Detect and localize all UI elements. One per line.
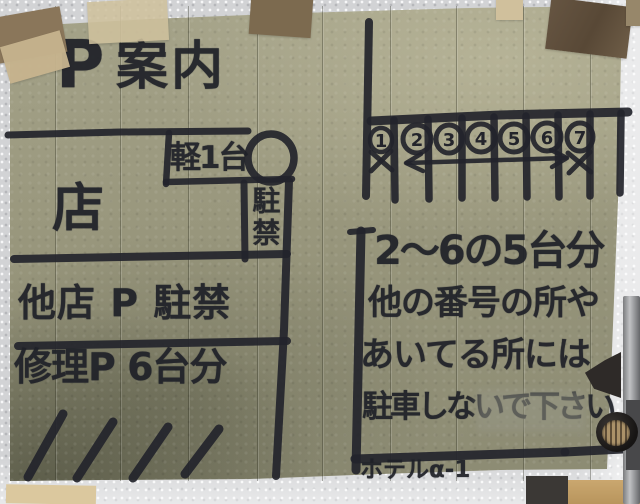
dark-base-object (526, 476, 568, 504)
no-parking-column-left-line (244, 183, 245, 259)
stall-digit: 5 (508, 129, 521, 150)
hotel-label: ホテルα-1 (360, 458, 470, 482)
stall-digit: 6 (541, 128, 554, 149)
tape-top-beige (87, 0, 169, 44)
tape-top-right-corner-bit (626, 0, 640, 26)
stall-digit: 7 (574, 128, 587, 149)
note-line3: あいてる所には (360, 338, 590, 374)
circle-mark (248, 134, 294, 182)
kei-space-label: 軽1台 (170, 142, 248, 175)
other-shop-row-label: 他店 P 駐禁 (18, 284, 231, 324)
photo-handwritten-parking-sign: 1 2 3 4 5 6 7 (0, 0, 640, 504)
no-parking-vertical-label: 駐禁 (250, 186, 279, 262)
tape-top-right-dark-brown (545, 0, 633, 59)
ink-smudge (476, 390, 586, 432)
clamp-knob-knurled-wheel (602, 420, 630, 446)
stalls-left-wall-line (366, 22, 369, 196)
tape-top-right-small-beige (496, 0, 523, 20)
shop-top-wall-line (8, 131, 248, 135)
shop-label: 店 (52, 182, 104, 237)
stall-digit: 4 (475, 129, 488, 150)
kei-box-left-line (166, 133, 169, 184)
other-shop-row-top-line (14, 254, 287, 259)
tape-top-center-brown (249, 0, 314, 38)
stall-digit: 3 (443, 130, 456, 151)
note-block-serif (350, 230, 373, 232)
note-line2: 他の番号の所や (368, 286, 599, 322)
tape-bottom-left-beige (6, 484, 96, 504)
note-line1: 2〜6の5台分 (374, 230, 604, 272)
title-annai: 案内 (116, 40, 226, 95)
repair-row-label: 修理P 6台分 (14, 348, 227, 388)
stall-digit: 2 (411, 130, 424, 151)
hatch-slashes (28, 414, 219, 478)
stall-digit: 1 (375, 131, 388, 152)
